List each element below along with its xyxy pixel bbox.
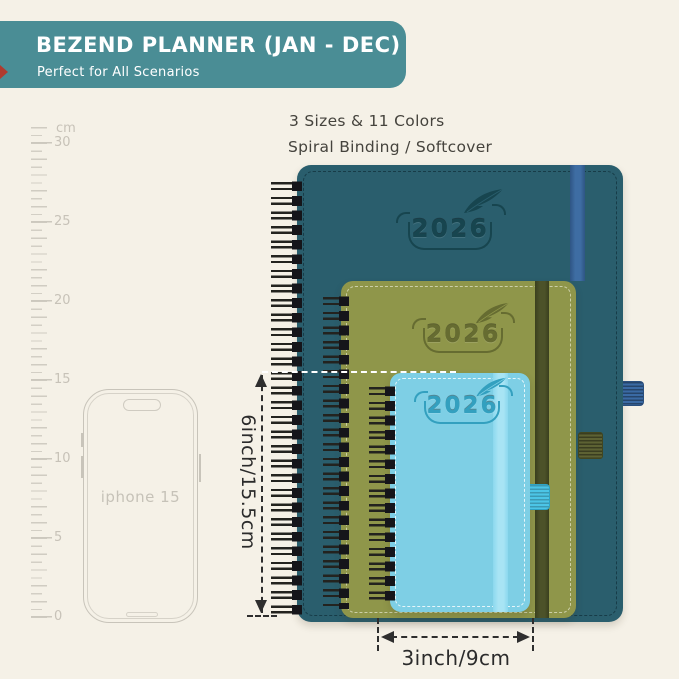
planner-small-logo: 2026 bbox=[420, 380, 505, 428]
phone-inner-frame bbox=[87, 393, 194, 619]
dimension-cap-line bbox=[247, 615, 277, 617]
arrow-right-icon bbox=[517, 631, 530, 643]
ruler-tick-label: 10 bbox=[54, 453, 80, 465]
ruler-tick-label: 30 bbox=[54, 137, 80, 149]
planner-small-pen-loop bbox=[530, 484, 550, 510]
height-dimension-line bbox=[261, 375, 263, 613]
planner-large-elastic-band bbox=[570, 165, 585, 281]
planner-large-logo: 2026 bbox=[400, 190, 500, 254]
phone-power-button bbox=[199, 454, 201, 482]
logo-underline-arc bbox=[423, 328, 503, 353]
planner-medium-logo: 2026 bbox=[418, 306, 508, 358]
dimension-align-line-top bbox=[262, 371, 456, 373]
ruler-tick-label: 0 bbox=[54, 611, 80, 623]
spiral-binding-large bbox=[271, 179, 302, 616]
phone-volume-button bbox=[81, 456, 83, 478]
phone-port bbox=[126, 612, 158, 617]
ruler-major-ticks bbox=[31, 142, 52, 620]
planner-large-pen-loop bbox=[623, 381, 644, 406]
planner-medium-pen-loop bbox=[578, 432, 603, 459]
product-image: BEZEND PLANNER (JAN - DEC) Perfect for A… bbox=[0, 0, 679, 679]
ruler-tick-label: 5 bbox=[54, 532, 80, 544]
height-dimension-label: 6inch/15.5cm bbox=[235, 397, 259, 567]
header-banner: BEZEND PLANNER (JAN - DEC) Perfect for A… bbox=[0, 21, 406, 88]
tagline-binding: Spiral Binding / Softcover bbox=[288, 138, 492, 156]
logo-underline-arc bbox=[424, 401, 500, 424]
spiral-clamps bbox=[339, 294, 349, 609]
accent-triangle-icon bbox=[0, 65, 8, 79]
arrow-left-icon bbox=[381, 631, 394, 643]
phone-label: iphone 15 bbox=[84, 488, 197, 506]
ruler-tick-label: 20 bbox=[54, 295, 80, 307]
ruler-scale: 30 25 20 15 10 5 0 bbox=[54, 137, 80, 623]
spiral-binding-medium bbox=[323, 294, 349, 609]
tagline-sizes: 3 Sizes & 11 Colors bbox=[289, 112, 445, 130]
phone-dynamic-island bbox=[123, 399, 161, 411]
phone-size-reference: iphone 15 bbox=[83, 389, 198, 623]
arrow-down-icon bbox=[255, 600, 267, 613]
logo-underline-arc bbox=[408, 222, 492, 250]
arrow-up-icon bbox=[255, 374, 267, 387]
ruler-unit-label: cm bbox=[56, 121, 76, 136]
planner-medium-elastic-band bbox=[535, 281, 549, 618]
width-dimension-line bbox=[391, 636, 519, 638]
spiral-clamps bbox=[292, 179, 302, 616]
spiral-clamps bbox=[385, 384, 395, 605]
ruler-tick-label: 15 bbox=[54, 374, 80, 386]
product-subtitle: Perfect for All Scenarios bbox=[37, 65, 200, 80]
width-dimension-label: 3inch/9cm bbox=[376, 646, 536, 670]
phone-volume-button bbox=[81, 433, 83, 447]
spiral-binding-small bbox=[369, 384, 395, 605]
product-title: BEZEND PLANNER (JAN - DEC) bbox=[36, 33, 396, 57]
ruler-tick-label: 25 bbox=[54, 216, 80, 228]
